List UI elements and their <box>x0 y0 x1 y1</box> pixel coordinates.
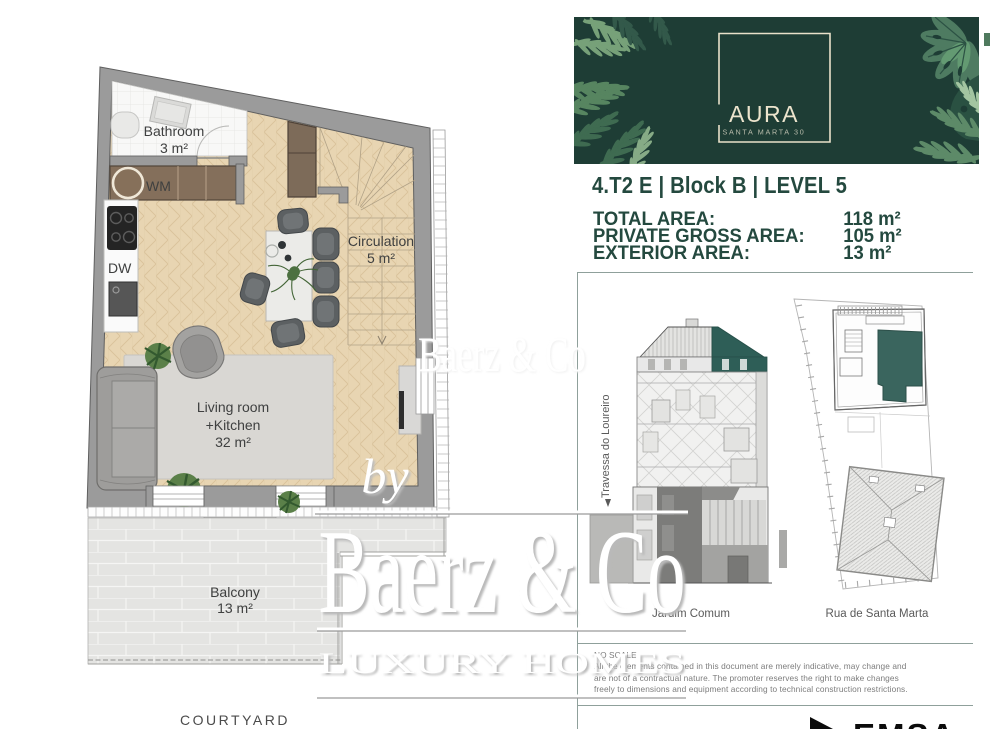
svg-text:Bathroom: Bathroom <box>144 123 205 139</box>
svg-text:EMSA: EMSA <box>853 717 956 729</box>
svg-text:COURTYARD: COURTYARD <box>180 712 290 728</box>
svg-text:5 m²: 5 m² <box>367 250 395 266</box>
svg-text:Living room: Living room <box>197 399 269 415</box>
svg-text:3 m²: 3 m² <box>160 140 188 156</box>
svg-text:Balcony: Balcony <box>210 584 260 600</box>
svg-text:DW: DW <box>108 260 132 276</box>
svg-text:Jardim Comum: Jardim Comum <box>652 608 730 620</box>
svg-text:Circulation: Circulation <box>348 233 414 249</box>
svg-text:AURA: AURA <box>729 101 799 127</box>
svg-text:SANTA MARTA 30: SANTA MARTA 30 <box>723 128 806 137</box>
svg-text:+Kitchen: +Kitchen <box>206 417 261 433</box>
svg-text:WM: WM <box>146 178 171 194</box>
svg-text:32 m²: 32 m² <box>215 434 251 450</box>
svg-text:13 m²: 13 m² <box>217 600 253 616</box>
svg-text:Rua de Santa Marta: Rua de Santa Marta <box>826 608 930 620</box>
svg-text:Travessa do Loureiro: Travessa do Loureiro <box>600 394 612 498</box>
